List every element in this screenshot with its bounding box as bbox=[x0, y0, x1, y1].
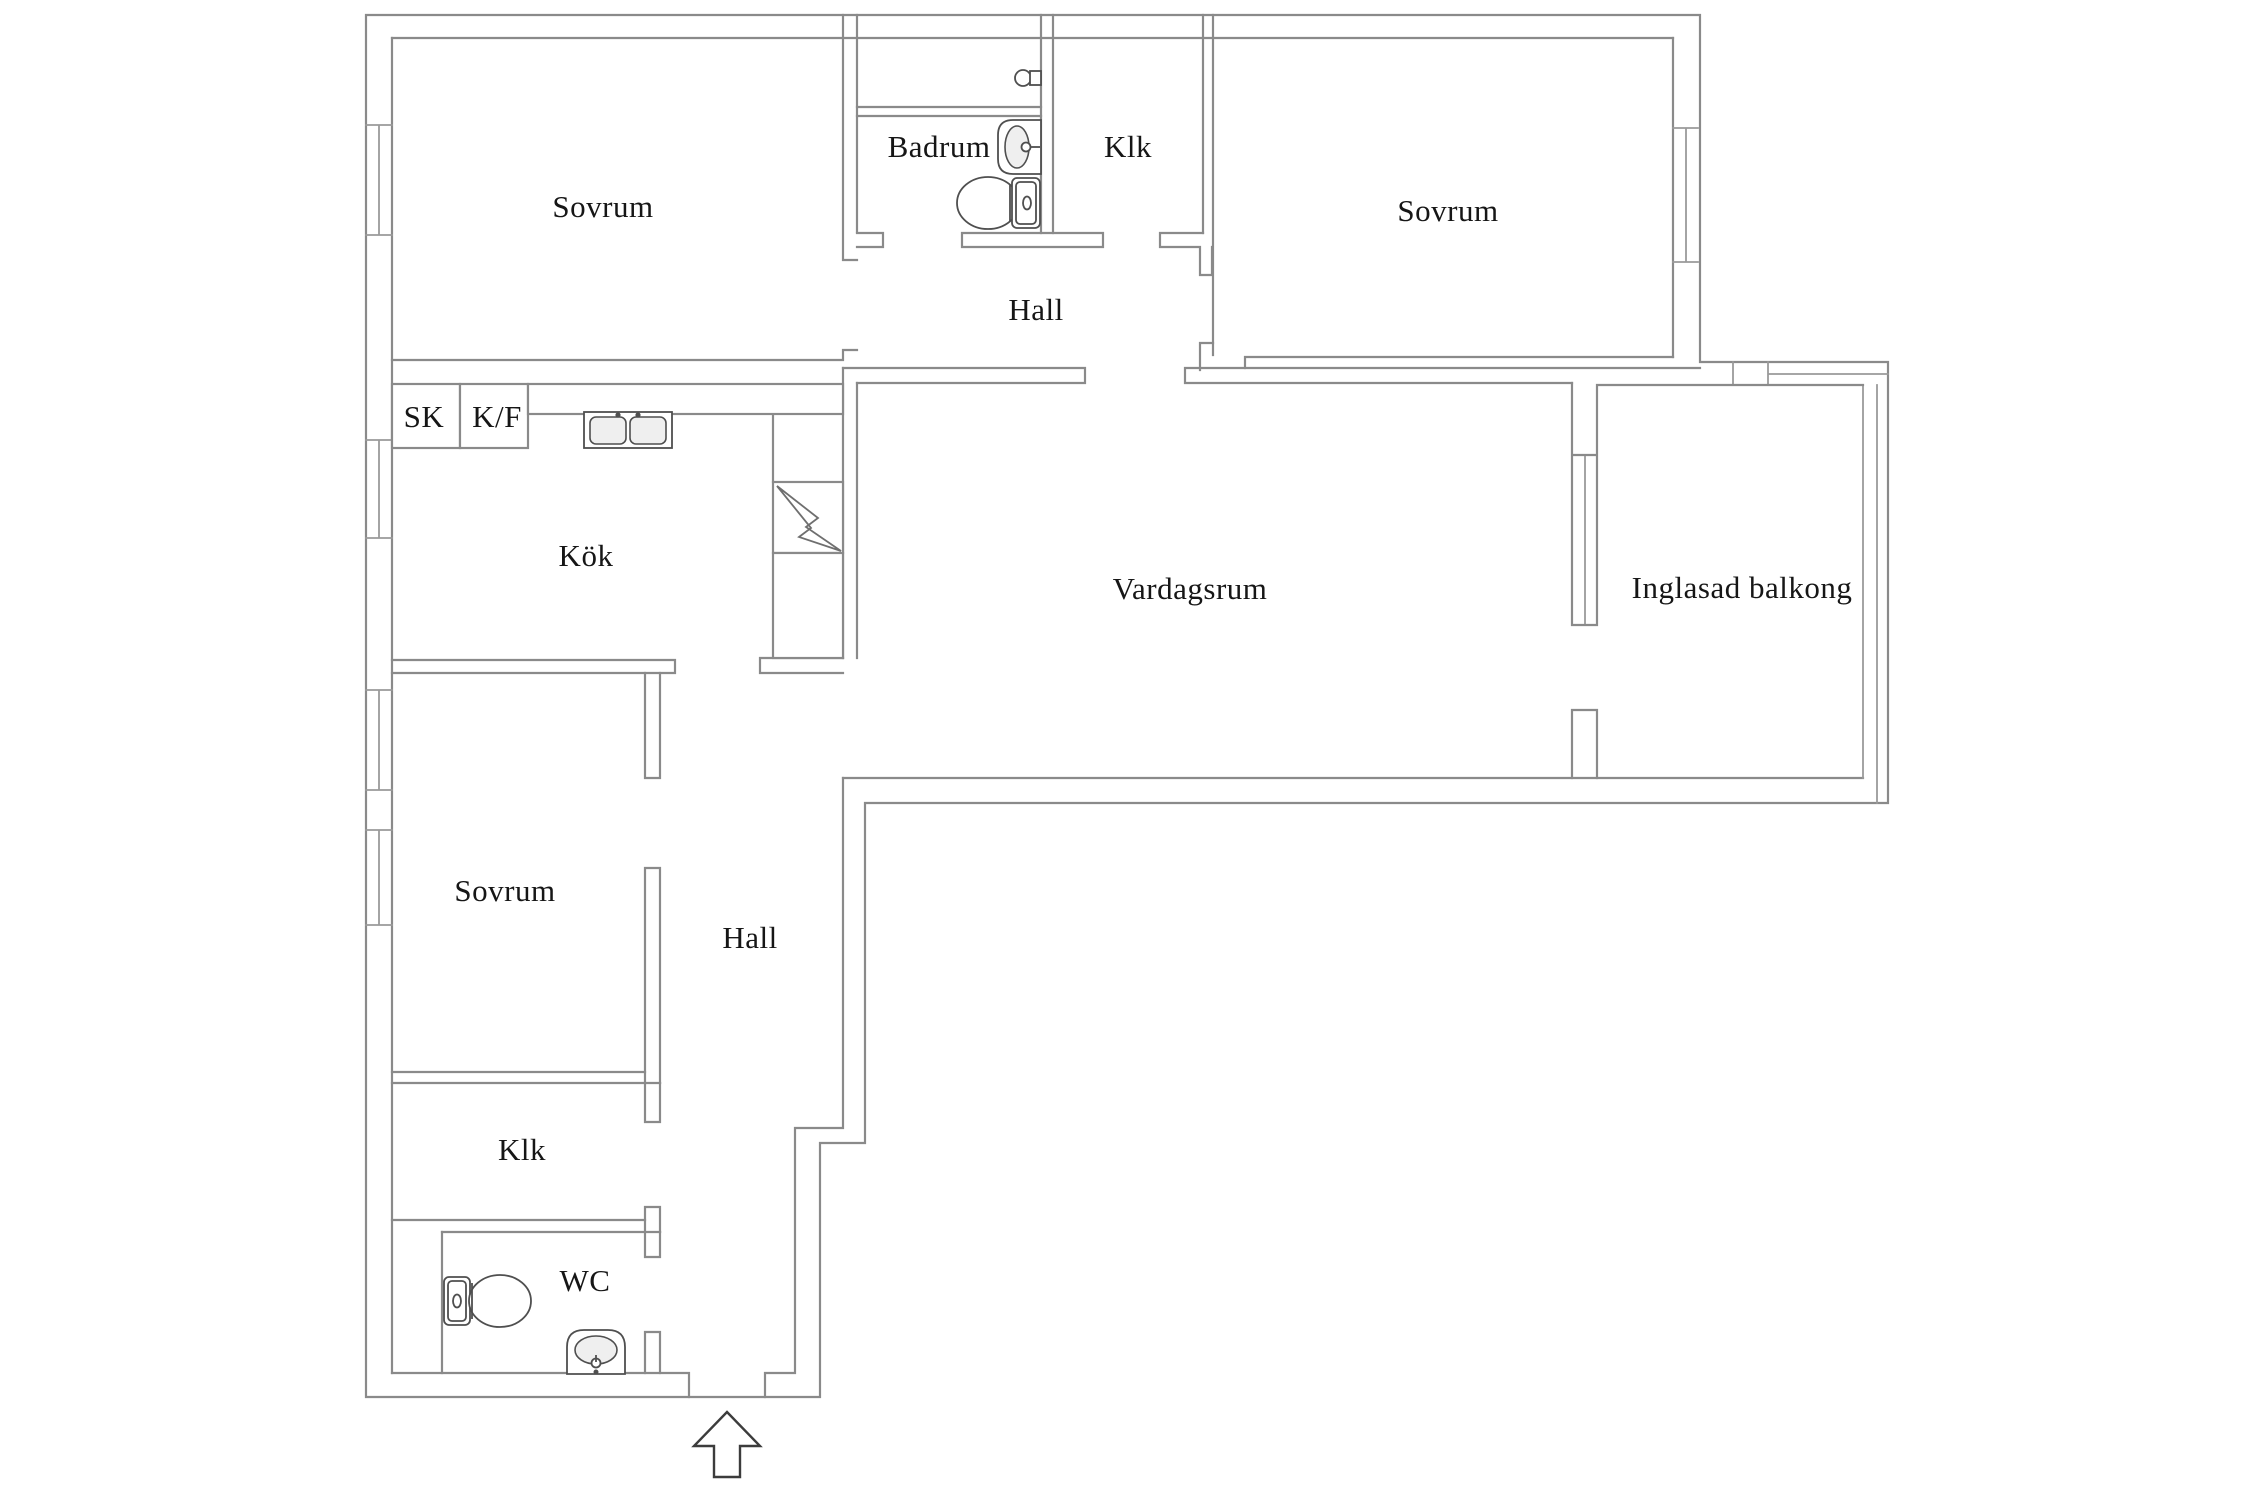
floor-plan-drawing bbox=[0, 0, 2250, 1500]
room-label-hall-bottom: Hall bbox=[722, 920, 777, 956]
room-label-sovrum-bottom: Sovrum bbox=[454, 873, 555, 909]
kitchen-sink-icon bbox=[584, 412, 672, 448]
electrical-shaft bbox=[773, 482, 843, 658]
bathroom-tap-icon bbox=[1015, 70, 1041, 86]
window-symbols bbox=[366, 125, 1888, 925]
room-label-vardagsrum: Vardagsrum bbox=[1113, 571, 1268, 607]
room-label-wc: WC bbox=[560, 1263, 611, 1299]
room-label-hall-top: Hall bbox=[1008, 292, 1063, 328]
room-label-badrum: Badrum bbox=[888, 129, 991, 165]
room-label-kf: K/F bbox=[472, 399, 522, 435]
room-label-kok: Kök bbox=[559, 538, 614, 574]
room-label-sovrum-top-right: Sovrum bbox=[1397, 193, 1498, 229]
room-label-klk-bottom: Klk bbox=[498, 1132, 546, 1168]
room-label-klk-top: Klk bbox=[1104, 129, 1152, 165]
room-label-sovrum-top-left: Sovrum bbox=[552, 189, 653, 225]
bathroom-toilet-icon bbox=[957, 177, 1040, 229]
wc-toilet-icon bbox=[444, 1275, 531, 1327]
room-label-sk: SK bbox=[404, 399, 445, 435]
bathroom-sink-icon bbox=[998, 120, 1041, 174]
floor-plan: Sovrum Badrum Klk Sovrum Hall SK K/F Kök… bbox=[0, 0, 2250, 1500]
entrance-arrow-icon bbox=[694, 1412, 760, 1477]
room-label-inglasad-balkong: Inglasad balkong bbox=[1632, 570, 1853, 606]
wc-sink-icon bbox=[567, 1330, 625, 1375]
